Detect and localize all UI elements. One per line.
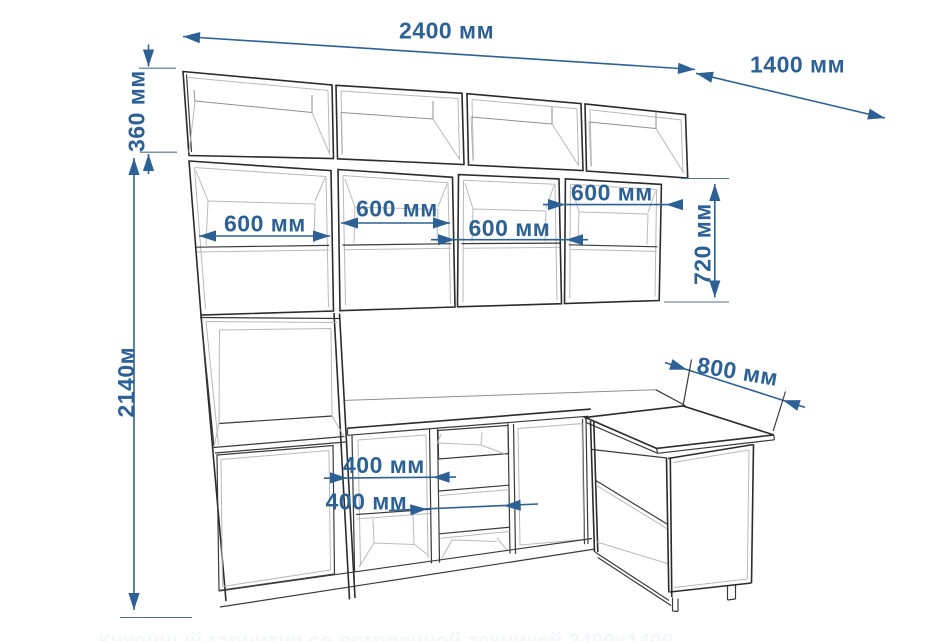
- svg-text:600 мм: 600 мм: [571, 180, 653, 206]
- svg-text:600 мм: 600 мм: [469, 215, 551, 241]
- svg-text:600 мм: 600 мм: [224, 211, 306, 237]
- svg-text:1400 мм: 1400 мм: [750, 52, 845, 78]
- svg-text:2400 мм: 2400 мм: [399, 18, 494, 44]
- svg-text:400 мм: 400 мм: [326, 489, 408, 515]
- svg-text:360 мм: 360 мм: [124, 70, 150, 152]
- svg-text:2140м: 2140м: [113, 347, 139, 418]
- svg-text:600 мм: 600 мм: [356, 196, 438, 222]
- svg-text:720 мм: 720 мм: [690, 203, 716, 285]
- svg-text:400 мм: 400 мм: [343, 452, 425, 478]
- svg-text:Кухонный гарнитур со встроенно: Кухонный гарнитур со встроенной техникой…: [98, 630, 673, 641]
